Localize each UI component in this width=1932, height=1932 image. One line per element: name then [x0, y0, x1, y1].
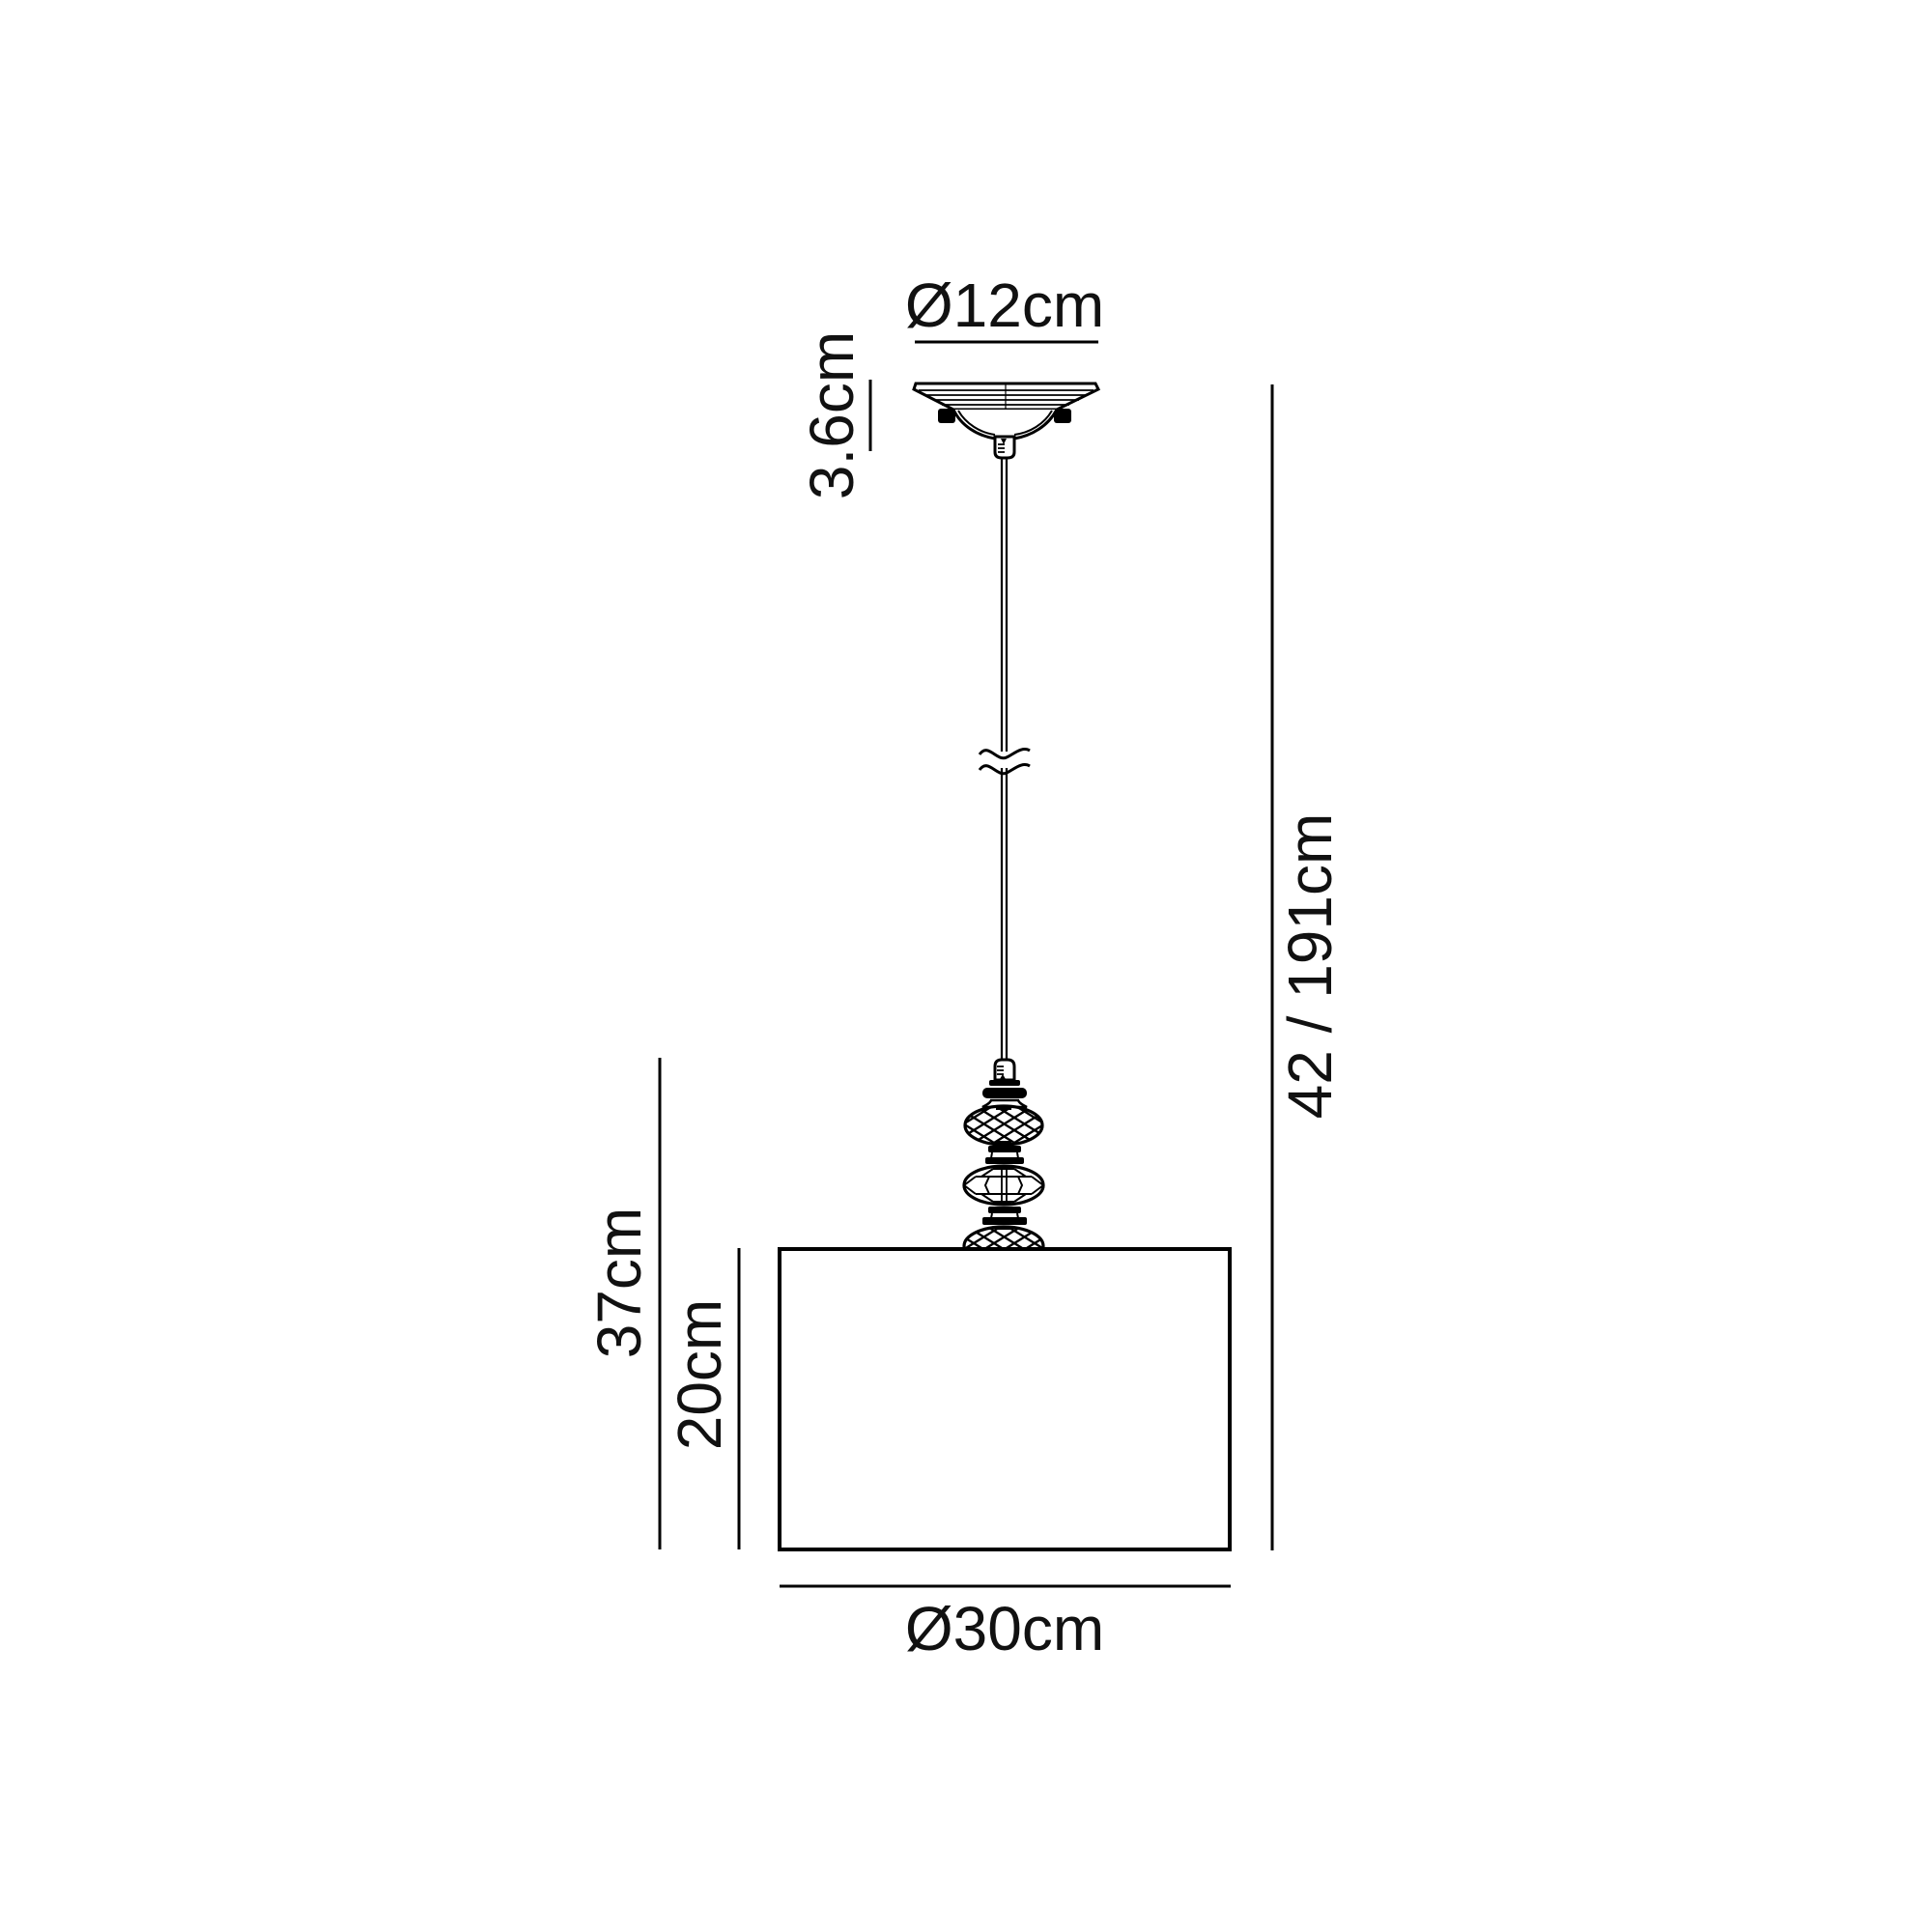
label-shade-diameter: Ø30cm — [905, 1594, 1104, 1663]
collar-band — [989, 1080, 1020, 1086]
crystal-ball-top — [965, 1106, 1042, 1145]
ball-pole-cap — [996, 1226, 1011, 1230]
collar-band — [982, 1217, 1027, 1225]
collar-band — [985, 1157, 1024, 1164]
ball-pole-cap — [996, 1141, 1011, 1145]
pendant-light-dimension-diagram: Ø12cm 3.6cm 42 / 191cm 37cm 20cm Ø30cm — [0, 0, 1932, 1932]
collar-band — [988, 1146, 1021, 1152]
label-fixture-height: 37cm — [584, 1207, 654, 1359]
label-canopy-height: 3.6cm — [797, 331, 867, 499]
dimension-drawing: Ø12cm 3.6cm 42 / 191cm 37cm 20cm Ø30cm — [0, 0, 1932, 1932]
label-canopy-diameter: Ø12cm — [905, 270, 1104, 340]
ball-pole-cap — [996, 1165, 1011, 1169]
ball-pole-cap — [996, 1106, 1011, 1110]
collar-bulge — [982, 1088, 1027, 1098]
label-shade-height: 20cm — [665, 1299, 734, 1451]
drum-shade — [780, 1249, 1230, 1549]
label-drop-height: 42 / 191cm — [1275, 813, 1345, 1120]
ball-pole-cap — [996, 1202, 1011, 1206]
crystal-ball-faceted — [964, 1165, 1043, 1206]
collar-band — [988, 1207, 1021, 1213]
